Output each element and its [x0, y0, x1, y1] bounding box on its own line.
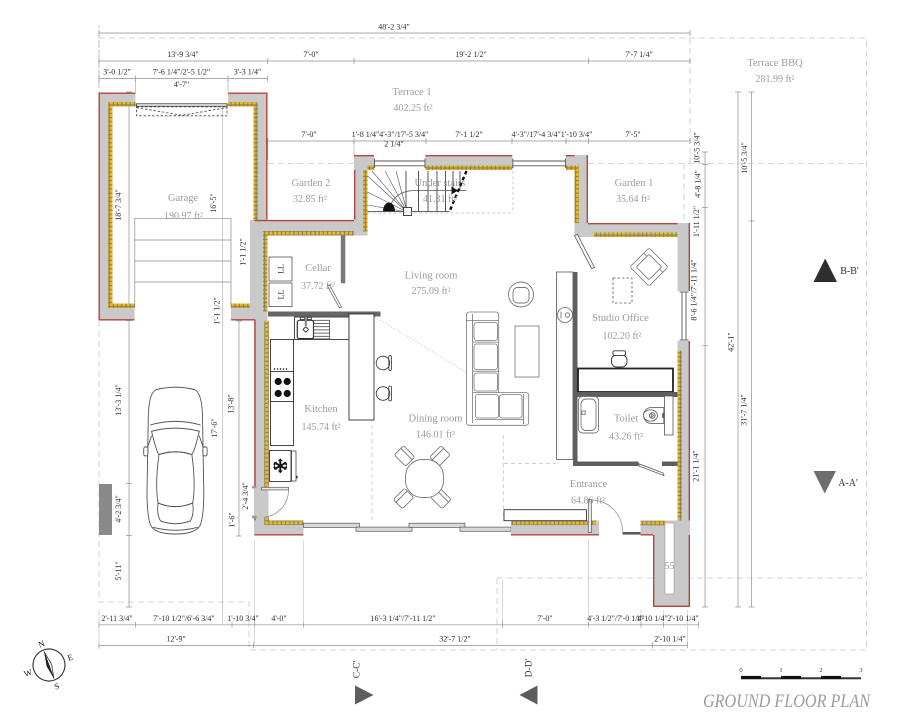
svg-text:7'-7 1/4": 7'-7 1/4" [625, 50, 653, 59]
svg-text:Dining room: Dining room [409, 414, 463, 425]
svg-text:Entrance: Entrance [570, 479, 608, 490]
svg-text:145.74 ft²: 145.74 ft² [301, 422, 340, 433]
svg-text:7'-0": 7'-0" [537, 614, 552, 623]
svg-text:37.72 ft²: 37.72 ft² [301, 281, 335, 292]
svg-text:1'-10 1/4": 1'-10 1/4" [636, 614, 668, 623]
svg-text:4'-8 1/4": 4'-8 1/4" [694, 170, 703, 198]
svg-text:1'-6": 1'-6" [228, 512, 237, 527]
svg-text:18'-7 3/4": 18'-7 3/4" [114, 189, 123, 221]
svg-text:16'-3 1/4"/7'-11 1/2": 16'-3 1/4"/7'-11 1/2" [370, 614, 435, 623]
svg-text:1'-11 1/2": 1'-11 1/2" [692, 206, 701, 237]
svg-text:LL: LL [277, 264, 286, 274]
svg-text:17'-6": 17'-6" [210, 418, 219, 437]
svg-text:7'-6 1/4"/2'-5 1/2": 7'-6 1/4"/2'-5 1/2" [153, 68, 210, 77]
svg-text:Terrace 1: Terrace 1 [392, 87, 431, 98]
svg-text:Studio Office: Studio Office [592, 313, 649, 324]
svg-text:31'-7 1/4": 31'-7 1/4" [740, 394, 749, 426]
svg-text:3'-3 1/4": 3'-3 1/4" [234, 68, 262, 77]
svg-text:B-B': B-B' [840, 266, 859, 277]
svg-text:7'-5": 7'-5" [625, 130, 640, 139]
svg-text:2 1/4": 2 1/4" [384, 140, 404, 149]
svg-text:Cellar: Cellar [305, 263, 331, 274]
svg-text:275.09 ft²: 275.09 ft² [411, 286, 450, 297]
svg-text:4'-3"/17'-4 3/4"1'-10 3/4": 4'-3"/17'-4 3/4"1'-10 3/4" [512, 130, 593, 139]
svg-text:1'-8 1/4"4'-3"/17'-5 3/4": 1'-8 1/4"4'-3"/17'-5 3/4" [352, 130, 429, 139]
svg-text:281.99 ft²: 281.99 ft² [755, 74, 794, 85]
svg-text:402.25 ft²: 402.25 ft² [393, 103, 432, 114]
svg-text:2'-10 1/4": 2'-10 1/4" [667, 614, 699, 623]
svg-text:7'-0": 7'-0" [301, 130, 316, 139]
svg-text:C-C': C-C' [353, 660, 363, 678]
svg-text:Toilet: Toilet [614, 414, 638, 425]
svg-text:13'-3 1/4": 13'-3 1/4" [114, 384, 123, 416]
svg-text:146.01 ft²: 146.01 ft² [416, 430, 455, 441]
svg-text:43.26 ft²: 43.26 ft² [609, 432, 643, 443]
svg-text:13'-9 3/4": 13'-9 3/4" [167, 50, 199, 59]
svg-text:41.31 ft²: 41.31 ft² [423, 194, 457, 205]
svg-text:2'-11 3/4": 2'-11 3/4" [101, 614, 132, 623]
svg-text:13'-8": 13'-8" [227, 394, 236, 413]
svg-text:Kitchen: Kitchen [304, 404, 338, 415]
svg-text:102.20 ft²: 102.20 ft² [602, 331, 641, 342]
svg-text:8'-6 1/4"/7'-11 1/4": 8'-6 1/4"/7'-11 1/4" [690, 259, 699, 320]
svg-text:7'-0": 7'-0" [303, 50, 318, 59]
svg-text:0: 0 [739, 667, 742, 674]
svg-text:1'-10 3/4": 1'-10 3/4" [227, 614, 259, 623]
svg-text:7'-10 1/2"/6'-6 3/4": 7'-10 1/2"/6'-6 3/4" [153, 614, 214, 623]
svg-text:5'-11": 5'-11" [114, 561, 123, 580]
svg-text:Living room: Living room [405, 271, 458, 282]
svg-text:Terrace BBQ: Terrace BBQ [747, 58, 803, 69]
svg-text:16'-5": 16'-5" [209, 193, 218, 212]
svg-text:Under stairs: Under stairs [414, 178, 465, 189]
svg-text:42'-1": 42'-1" [727, 332, 736, 351]
svg-text:35.64 ft²: 35.64 ft² [616, 194, 650, 205]
svg-text:2'-10 1/4": 2'-10 1/4" [654, 635, 686, 644]
svg-text:LL: LL [277, 290, 286, 300]
svg-text:1'-1 1/2": 1'-1 1/2" [213, 297, 222, 325]
svg-text:19'-2 1/2": 19'-2 1/2" [455, 50, 487, 59]
svg-text:1'-1 1/2": 1'-1 1/2" [239, 238, 248, 266]
svg-text:55: 55 [665, 561, 675, 572]
svg-text:32'-7 1/2": 32'-7 1/2" [439, 635, 471, 644]
svg-text:4'-0": 4'-0" [271, 614, 286, 623]
svg-text:4'-2 3/4": 4'-2 3/4" [114, 495, 123, 523]
svg-text:7'-1 1/2": 7'-1 1/2" [455, 130, 483, 139]
svg-text:10'-5 3/4": 10'-5 3/4" [693, 132, 702, 164]
svg-text:Garage: Garage [168, 193, 199, 204]
svg-text:2: 2 [819, 667, 822, 674]
svg-text:3'-0 1/2": 3'-0 1/2" [103, 68, 131, 77]
svg-text:GROUND FLOOR PLAN: GROUND FLOOR PLAN [703, 692, 871, 712]
svg-text:21'-1 1/4": 21'-1 1/4" [692, 450, 701, 482]
svg-text:2'-4 3/4": 2'-4 3/4" [241, 482, 250, 510]
svg-text:1: 1 [779, 667, 782, 674]
svg-text:3: 3 [859, 667, 862, 674]
svg-text:D-D': D-D' [525, 658, 535, 677]
svg-text:A-A': A-A' [838, 478, 858, 489]
svg-text:32.85 ft²: 32.85 ft² [293, 194, 327, 205]
svg-text:10'-5 3/4": 10'-5 3/4" [740, 142, 749, 174]
svg-text:48'-2 3/4": 48'-2 3/4" [378, 23, 410, 32]
svg-text:64.86 ft²: 64.86 ft² [571, 496, 605, 507]
svg-text:4'-7": 4'-7" [174, 80, 189, 89]
svg-text:12'-9": 12'-9" [166, 635, 185, 644]
svg-text:Garden 2: Garden 2 [292, 178, 331, 189]
svg-text:190.97 ft²: 190.97 ft² [164, 211, 203, 222]
svg-text:Garden 1: Garden 1 [615, 178, 654, 189]
